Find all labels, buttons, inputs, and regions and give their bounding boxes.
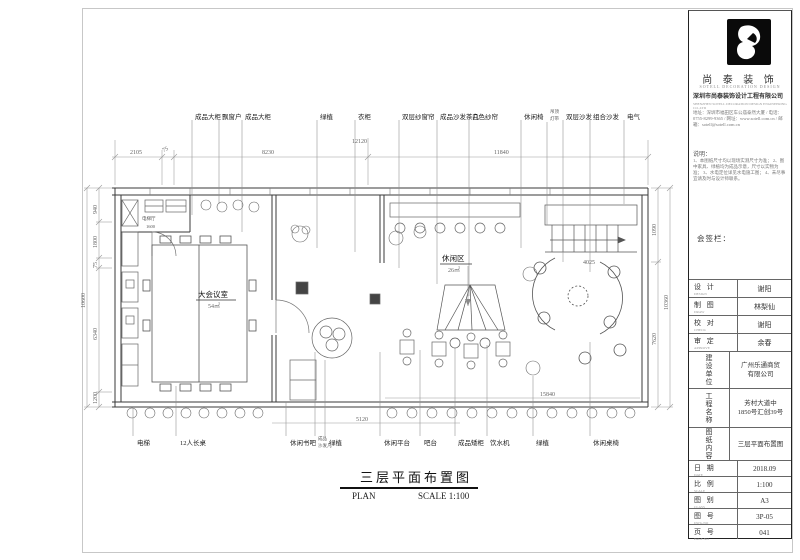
plan-label: 双层沙发 bbox=[566, 112, 593, 121]
caption-scale: SCALE 1:100 bbox=[418, 491, 470, 501]
row-value: 谢阳 bbox=[738, 316, 791, 333]
plan-label: 组合沙发 bbox=[593, 112, 620, 121]
plan-label: 吊顶 bbox=[550, 109, 559, 115]
content-label: 图纸内容 bbox=[689, 428, 730, 460]
window-mullions bbox=[150, 188, 590, 195]
caption-plan: PLAN bbox=[352, 491, 376, 501]
meta-row: 日 期DATE 2018.09 bbox=[689, 460, 791, 476]
plan-label: 电气 bbox=[627, 112, 641, 121]
dimension-text: 10360 bbox=[664, 295, 670, 310]
content-row: 图纸内容 三层平面布置图 bbox=[689, 427, 791, 460]
meta-value: 3P-05 bbox=[738, 509, 791, 524]
elevator-label: 电梯厅 bbox=[142, 215, 156, 222]
plan-label: 白色纱帘 bbox=[472, 112, 499, 121]
plan-label: 休闲桌椅 bbox=[593, 438, 620, 447]
dove-icon bbox=[727, 19, 771, 65]
company-contact: 地址：深圳市福田区车公庙泰然大厦 / 电话：0755-8299-9365 / 网… bbox=[693, 110, 787, 128]
dim-left-text: 940 1800 75 6340 1200 10600 bbox=[81, 205, 99, 404]
dimension-text: 2105 bbox=[130, 150, 142, 156]
stair-dim: 4025 bbox=[583, 260, 595, 266]
content-value: 三层平面布置图 bbox=[738, 440, 784, 449]
leader-lines-top bbox=[192, 120, 624, 296]
meta-value: A3 bbox=[738, 493, 791, 508]
row-sub: CHECK bbox=[694, 328, 734, 332]
project-value: 芳村大道中 bbox=[744, 399, 777, 408]
titleblock-row: 制 图DRAW 林梨仙 bbox=[689, 297, 791, 315]
client-value: 广州乐通商贸 bbox=[741, 361, 780, 370]
project-label: 工程名称 bbox=[689, 389, 730, 427]
plan-label: 飘窗户 bbox=[222, 112, 242, 121]
company-logo bbox=[727, 19, 771, 65]
dimension-text: 1800 bbox=[93, 236, 99, 248]
curved-sofas bbox=[532, 258, 626, 364]
elevator-dim: 1600 bbox=[146, 224, 156, 229]
caption-title: 三层平面布置图 bbox=[360, 470, 472, 485]
dimension-text: 10600 bbox=[81, 293, 87, 308]
title-block: 尚 泰 装 饰 SOTELL DECORATION DESIGN 深圳市尚泰装饰… bbox=[688, 10, 792, 539]
meta-value: 041 bbox=[738, 525, 791, 539]
plan-label: 休闲书吧 bbox=[290, 438, 317, 447]
corridor-furniture bbox=[290, 282, 380, 400]
dim-top bbox=[112, 138, 651, 185]
row-label: 审 定 bbox=[694, 337, 716, 345]
dim-top-text: 2105 75 8230 11840 12120 bbox=[130, 139, 509, 156]
plants bbox=[127, 200, 635, 418]
room-name: 休闲区 bbox=[442, 253, 465, 263]
row-label: 制 图 bbox=[694, 301, 716, 309]
notes-text: 1、本图纸尺寸均以现场实测尺寸为准； 2、图中家具、绿植均为成品示意，尺寸以实物… bbox=[693, 158, 787, 182]
meta-value: 1:100 bbox=[738, 477, 791, 492]
plan-label: 绿植 bbox=[536, 438, 550, 447]
titleblock-row: 审 定APPROVE 余春 bbox=[689, 333, 791, 351]
brand-name-en: SOTELL DECORATION DESIGN bbox=[689, 84, 791, 89]
room-labels: 大会议室 54㎡ 休闲区 26㎡ bbox=[196, 253, 472, 310]
dimension-text: 75 bbox=[161, 146, 169, 154]
dimension-text: 11840 bbox=[494, 150, 509, 156]
dimension-text: 1200 bbox=[93, 392, 99, 404]
row-label: 校 对 bbox=[694, 319, 716, 327]
floor-plan: 成品大柜 飘窗户 成品大柜 绿植 衣柜 双层纱窗帘 成品沙发茶几 白色纱帘 休闲… bbox=[0, 0, 690, 560]
meta-row: 图 号DWG.NO 3P-05 bbox=[689, 508, 791, 524]
row-value: 林梨仙 bbox=[738, 298, 791, 315]
stairs bbox=[545, 205, 637, 252]
drawing-sheet: 成品大柜 飘窗户 成品大柜 绿植 衣柜 双层纱窗帘 成品沙发茶几 白色纱帘 休闲… bbox=[0, 0, 800, 560]
project-row: 工程名称 芳村大道中 1850号汇创39号 bbox=[689, 388, 791, 427]
meta-label: 日 期 bbox=[694, 464, 716, 472]
dimension-text: 7620 bbox=[652, 333, 658, 345]
plan-label: 成品矮柜 bbox=[458, 438, 485, 447]
meta-label: 图 别 bbox=[694, 496, 716, 504]
dimension-text: 6340 bbox=[93, 328, 99, 340]
signoff-label: 会签栏： bbox=[697, 233, 731, 244]
row-label: 设 计 bbox=[694, 283, 716, 291]
plan-label: 成品 bbox=[318, 435, 327, 442]
plan-label: 衣柜 bbox=[358, 112, 372, 121]
drawing-caption: 三层平面布置图 PLAN SCALE 1:100 bbox=[340, 470, 478, 501]
dimension-text: 940 bbox=[93, 205, 99, 214]
plan-label: 双层纱窗帘 bbox=[402, 112, 435, 121]
row-sub: APPROVE bbox=[694, 346, 734, 350]
plan-label: 成品大柜 bbox=[245, 112, 272, 121]
titleblock-row: 校 对CHECK 谢阳 bbox=[689, 315, 791, 333]
meta-row: 比 例SCALE 1:100 bbox=[689, 476, 791, 492]
meta-sub: PAGE.NO bbox=[694, 537, 734, 541]
bench-row bbox=[390, 203, 520, 233]
meta-value: 2018.09 bbox=[738, 461, 791, 476]
meeting-table bbox=[143, 236, 256, 391]
plan-label: 休闲椅 bbox=[524, 112, 544, 121]
plan-label: 绿植 bbox=[329, 438, 343, 447]
meta-label: 页 号 bbox=[694, 528, 716, 536]
meta-row: 图 别CLASS A3 bbox=[689, 492, 791, 508]
meta-row: 页 号PAGE.NO 041 bbox=[689, 524, 791, 539]
dimension-text: 8230 bbox=[262, 150, 274, 156]
bottom-labels: 电梯 12人长桌 休闲书吧 成品 沙发几 绿植 休闲平台 吧台 成品矮柜 饮水机… bbox=[137, 435, 620, 449]
plan-label: 成品大柜 bbox=[195, 112, 222, 121]
reception-desk bbox=[437, 285, 505, 348]
room-area: 54㎡ bbox=[208, 302, 220, 310]
dim-right-text: 1090 7620 10360 bbox=[652, 224, 670, 345]
plan-label: 12人长桌 bbox=[180, 438, 207, 447]
doors bbox=[152, 232, 309, 333]
row-sub: DRAW bbox=[694, 310, 734, 314]
dimension-text: 12120 bbox=[352, 139, 367, 145]
top-labels: 成品大柜 飘窗户 成品大柜 绿植 衣柜 双层纱窗帘 成品沙发茶几 白色纱帘 休闲… bbox=[195, 109, 641, 122]
dim-left bbox=[84, 185, 112, 410]
plan-label: 电梯 bbox=[137, 438, 151, 447]
company-fullname-en: SHENZHEN SOTELL DECORATION DESIGN ENGINE… bbox=[693, 102, 787, 110]
plan-label: 饮水机 bbox=[490, 438, 510, 447]
room-area: 26㎡ bbox=[448, 266, 460, 274]
client-label: 建设单位 bbox=[689, 352, 730, 388]
dimension-text: 75 bbox=[93, 262, 99, 268]
inner-labels: 电梯厅 1600 4025 bbox=[142, 215, 595, 266]
meta-label: 图 号 bbox=[694, 512, 716, 520]
row-value: 谢阳 bbox=[738, 280, 791, 297]
row-value: 余春 bbox=[738, 334, 791, 351]
row-sub: DESIGN bbox=[694, 292, 734, 296]
notes-title: 说明： bbox=[693, 149, 711, 158]
room-name: 大会议室 bbox=[198, 289, 228, 299]
plan-label: 灯带 bbox=[550, 115, 559, 122]
meta-label: 比 例 bbox=[694, 480, 716, 488]
plan-label: 绿植 bbox=[320, 112, 334, 121]
client-row: 建设单位 广州乐通商贸 有限公司 bbox=[689, 351, 791, 388]
company-fullname: 深圳市尚泰装饰设计工程有限公司 bbox=[693, 94, 787, 101]
dimension-text: 15840 bbox=[540, 392, 555, 398]
project-value: 1850号汇创39号 bbox=[738, 408, 784, 417]
titleblock-row: 设 计DESIGN 谢阳 bbox=[689, 279, 791, 297]
dimension-text: 5120 bbox=[356, 417, 368, 423]
plan-label: 休闲平台 bbox=[384, 438, 410, 447]
plan-label: 吧台 bbox=[424, 438, 437, 447]
dimension-text: 1090 bbox=[652, 224, 658, 236]
client-value: 有限公司 bbox=[748, 370, 774, 379]
